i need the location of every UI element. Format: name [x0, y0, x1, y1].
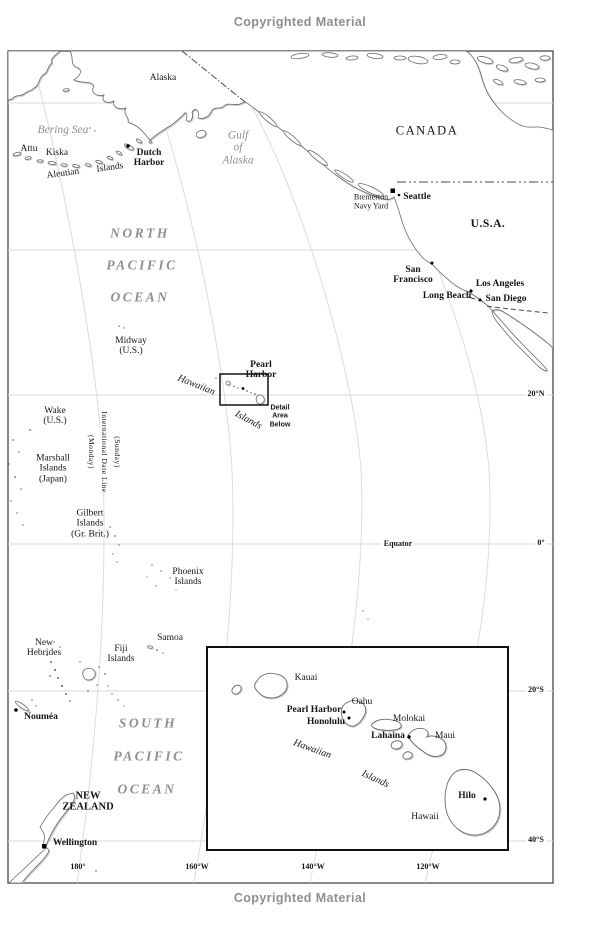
lanai	[391, 741, 402, 749]
dutch-harbor-marker	[126, 144, 130, 148]
fiji-main-island	[83, 668, 95, 680]
noumea-marker	[14, 708, 18, 712]
san-francisco-marker	[431, 262, 434, 265]
inset-hilo-marker	[483, 797, 486, 800]
kauai-main-map	[226, 381, 230, 385]
san-diego-marker	[479, 299, 482, 302]
wellington-marker	[42, 844, 47, 849]
pacific-ocean-map	[0, 0, 600, 925]
los-angeles-marker	[469, 289, 472, 292]
hawaii-inset	[207, 647, 508, 850]
bremerton-marker	[391, 189, 396, 194]
book-map-page: Copyrighted Material	[0, 0, 600, 925]
pearl-harbor-marker	[242, 387, 245, 390]
inset-honolulu-marker	[348, 717, 351, 720]
inset-lahaina-marker	[407, 735, 410, 738]
hawaii-main-map	[256, 395, 264, 404]
molokai	[372, 719, 402, 730]
copyright-notice-bottom: Copyrighted Material	[0, 891, 600, 905]
seattle-marker	[398, 194, 401, 197]
inset-pearl-harbor-marker	[343, 711, 346, 714]
